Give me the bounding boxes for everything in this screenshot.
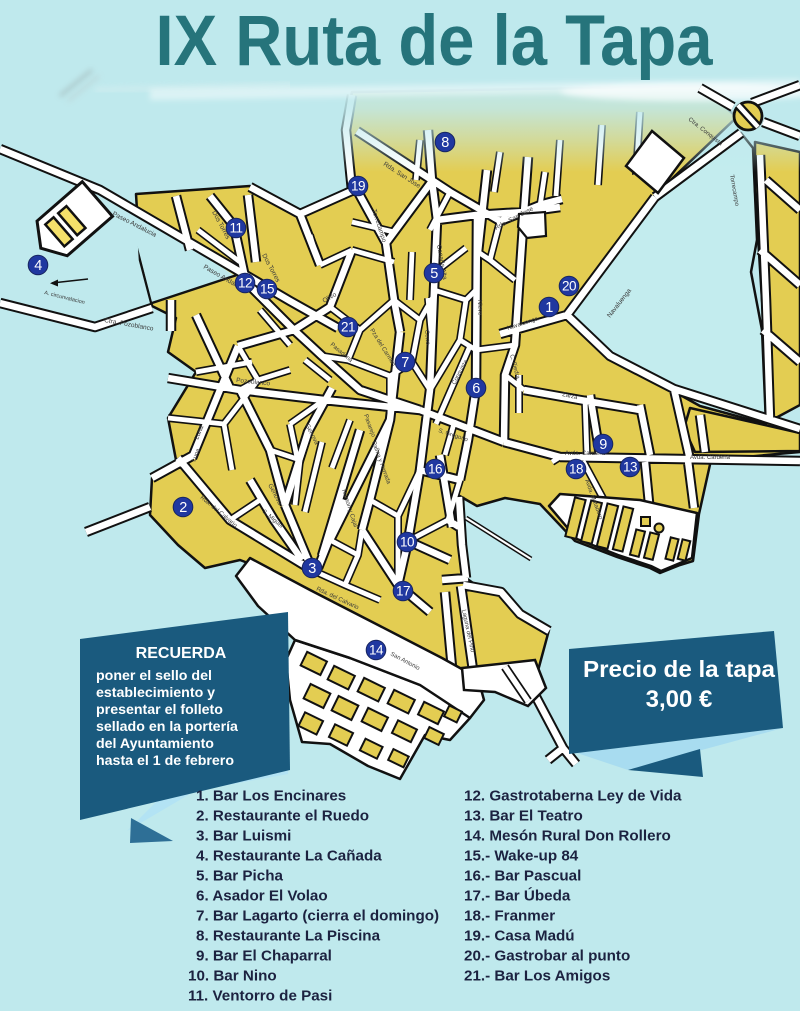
svg-text:sellado en la portería: sellado en la portería xyxy=(96,719,238,735)
svg-text:20: 20 xyxy=(562,279,576,294)
svg-text:14. Mesón Rural Don Rollero: 14. Mesón Rural Don Rollero xyxy=(464,828,671,845)
svg-text:10. Bar Nino: 10. Bar Nino xyxy=(188,968,277,985)
svg-text:20.- Gastrobar al punto: 20.- Gastrobar al punto xyxy=(464,948,630,965)
svg-text:7. Bar Lagarto (cierra el domi: 7. Bar Lagarto (cierra el domingo) xyxy=(196,908,439,925)
svg-text:10: 10 xyxy=(400,535,414,550)
svg-text:7: 7 xyxy=(401,355,409,371)
svg-text:6. Asador El Volao: 6. Asador El Volao xyxy=(196,888,328,905)
svg-text:4: 4 xyxy=(34,258,42,274)
svg-text:6: 6 xyxy=(472,381,480,397)
svg-text:13: 13 xyxy=(623,460,637,475)
svg-text:18: 18 xyxy=(569,462,583,477)
svg-text:Avda. Cardena: Avda. Cardena xyxy=(690,455,731,461)
svg-text:2. Restaurante el Ruedo: 2. Restaurante el Ruedo xyxy=(196,808,369,825)
svg-text:3,00 €: 3,00 € xyxy=(646,686,713,713)
svg-text:17.- Bar Úbeda: 17.- Bar Úbeda xyxy=(464,887,571,905)
svg-text:3. Bar Luismi: 3. Bar Luismi xyxy=(196,828,291,845)
svg-text:establecimiento y: establecimiento y xyxy=(96,685,215,701)
svg-text:16: 16 xyxy=(428,462,442,477)
svg-text:presentar el folleto: presentar el folleto xyxy=(96,702,223,718)
svg-text:1. Bar Los Encinares: 1. Bar Los Encinares xyxy=(196,788,346,805)
svg-text:Precio de la tapa: Precio de la tapa xyxy=(583,656,775,682)
svg-text:15.- Wake-up 84: 15.- Wake-up 84 xyxy=(464,848,579,865)
svg-text:12. Gastrotaberna Ley de Vida: 12. Gastrotaberna Ley de Vida xyxy=(464,788,682,805)
svg-text:1: 1 xyxy=(545,300,553,316)
svg-text:11: 11 xyxy=(229,221,242,236)
svg-text:16.- Bar Pascual: 16.- Bar Pascual xyxy=(464,868,581,885)
svg-text:poner el sello del: poner el sello del xyxy=(96,668,212,684)
svg-text:11. Ventorro de Pasi: 11. Ventorro de Pasi xyxy=(188,988,332,1005)
svg-text:Nieve: Nieve xyxy=(476,300,483,316)
svg-text:5. Bar Picha: 5. Bar Picha xyxy=(196,868,284,885)
svg-text:del Ayuntamiento: del Ayuntamiento xyxy=(96,736,214,752)
svg-text:3: 3 xyxy=(308,561,316,577)
svg-text:RECUERDA: RECUERDA xyxy=(136,645,227,662)
svg-text:5: 5 xyxy=(430,266,438,282)
svg-text:18.- Franmer: 18.- Franmer xyxy=(464,908,555,925)
svg-text:14: 14 xyxy=(369,643,384,658)
svg-text:hasta el 1 de febrero: hasta el 1 de febrero xyxy=(96,753,234,769)
svg-text:2: 2 xyxy=(179,500,187,516)
svg-text:8: 8 xyxy=(441,135,449,151)
svg-text:19: 19 xyxy=(351,179,365,194)
svg-text:8. Restaurante La Piscina: 8. Restaurante La Piscina xyxy=(196,928,381,945)
svg-text:21: 21 xyxy=(341,320,355,335)
svg-text:9. Bar El Chaparral: 9. Bar El Chaparral xyxy=(196,948,332,965)
svg-text:12: 12 xyxy=(238,276,252,291)
svg-text:15: 15 xyxy=(260,282,274,297)
svg-text:13. Bar El Teatro: 13. Bar El Teatro xyxy=(464,808,583,825)
svg-text:9: 9 xyxy=(599,437,607,453)
svg-text:IX Ruta de la Tapa: IX Ruta de la Tapa xyxy=(156,2,713,81)
svg-text:4. Restaurante La Cañada: 4. Restaurante La Cañada xyxy=(196,848,382,865)
svg-text:21.- Bar Los Amigos: 21.- Bar Los Amigos xyxy=(464,968,610,985)
svg-text:17: 17 xyxy=(396,584,410,599)
svg-text:19.- Casa Madú: 19.- Casa Madú xyxy=(464,928,575,945)
